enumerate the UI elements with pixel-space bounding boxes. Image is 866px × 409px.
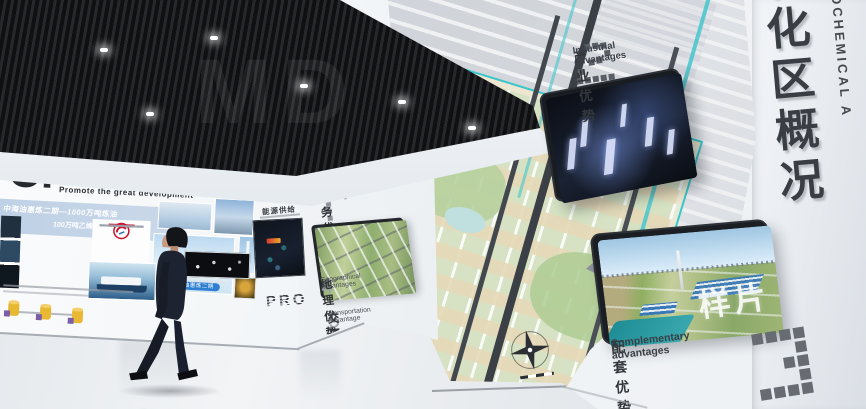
photo-thumb-strip: [0, 216, 21, 289]
pixel-letters: PRO: [265, 291, 308, 311]
lit-tower: [567, 138, 577, 170]
compass-rose-icon: [504, 324, 556, 376]
city-photo-panel: [213, 198, 255, 236]
lit-tower: [645, 117, 654, 147]
lit-tower: [604, 138, 616, 175]
right-wall-title-cn: 石化区概况: [755, 0, 821, 210]
lit-tower: [667, 129, 675, 155]
tank-icon: [67, 306, 86, 327]
energy-dark-screen: [253, 218, 306, 279]
right-wall-title-en: OCHEMICAL A: [829, 0, 855, 118]
advantage-1-title-en: service advantage: [318, 185, 351, 203]
ceiling-spotlight: [468, 126, 476, 130]
ceiling-spotlight: [398, 100, 406, 104]
energy-screen-logo: [266, 238, 280, 244]
tank-icon: [4, 298, 23, 319]
chevron-arrows-icon: »: [148, 174, 158, 192]
person-reflection: [124, 392, 210, 409]
ceiling-spotlight: [100, 48, 108, 52]
banner-line-2: 100万吨乙烯: [52, 220, 93, 232]
lit-tower: [620, 104, 627, 128]
walking-person: [124, 222, 210, 394]
flow-caption-line: [3, 290, 89, 296]
tank-icon: [36, 302, 55, 323]
night-gold-photo-panel: [233, 276, 256, 299]
pixel-numeral-3-icon: [751, 326, 815, 402]
ceiling-watermark: MD: [195, 40, 358, 145]
advantage-5-title-en: Transportation Advantage: [327, 306, 372, 324]
ceiling-spotlight: [146, 112, 154, 116]
exhibition-hall-scene: 石化区概况 OCHEMICAL A C. 大项目带动大发展 Promote th…: [0, 0, 866, 409]
